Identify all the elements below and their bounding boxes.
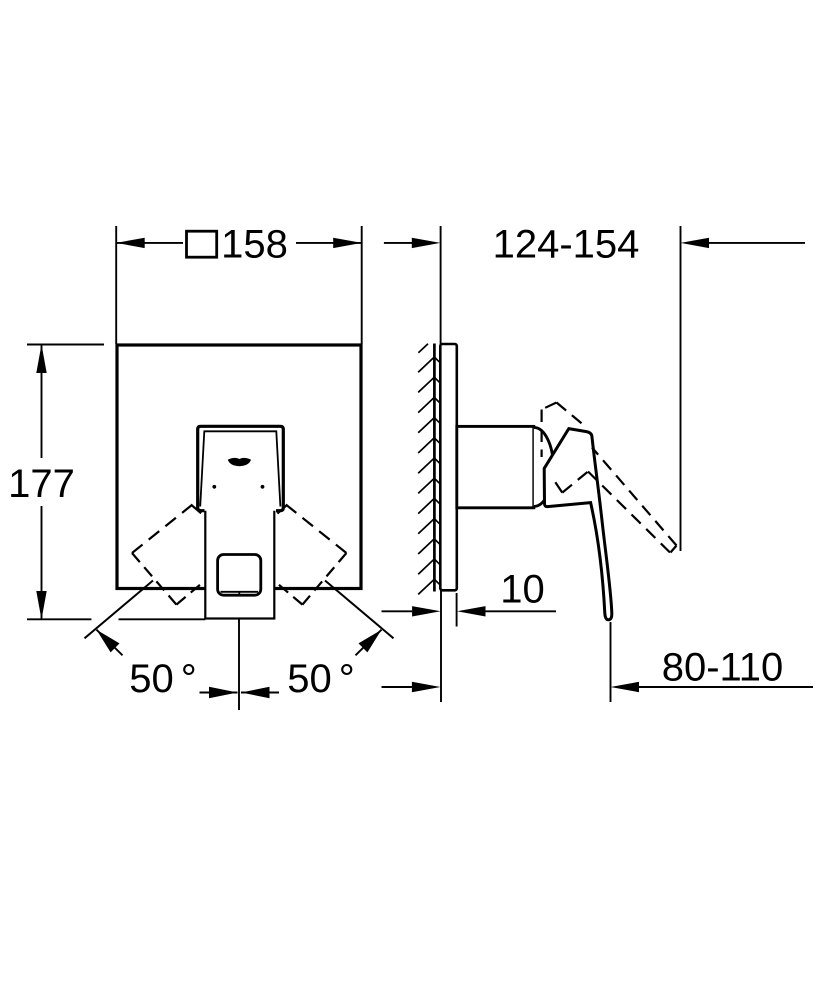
- svg-text:10: 10: [500, 568, 545, 612]
- svg-text:124-154: 124-154: [493, 223, 640, 267]
- svg-text:50°: 50°: [129, 657, 197, 701]
- svg-text:80-110: 80-110: [662, 646, 784, 690]
- svg-text:50°: 50°: [287, 657, 355, 701]
- svg-text:158: 158: [221, 223, 288, 267]
- svg-text:177: 177: [8, 462, 75, 506]
